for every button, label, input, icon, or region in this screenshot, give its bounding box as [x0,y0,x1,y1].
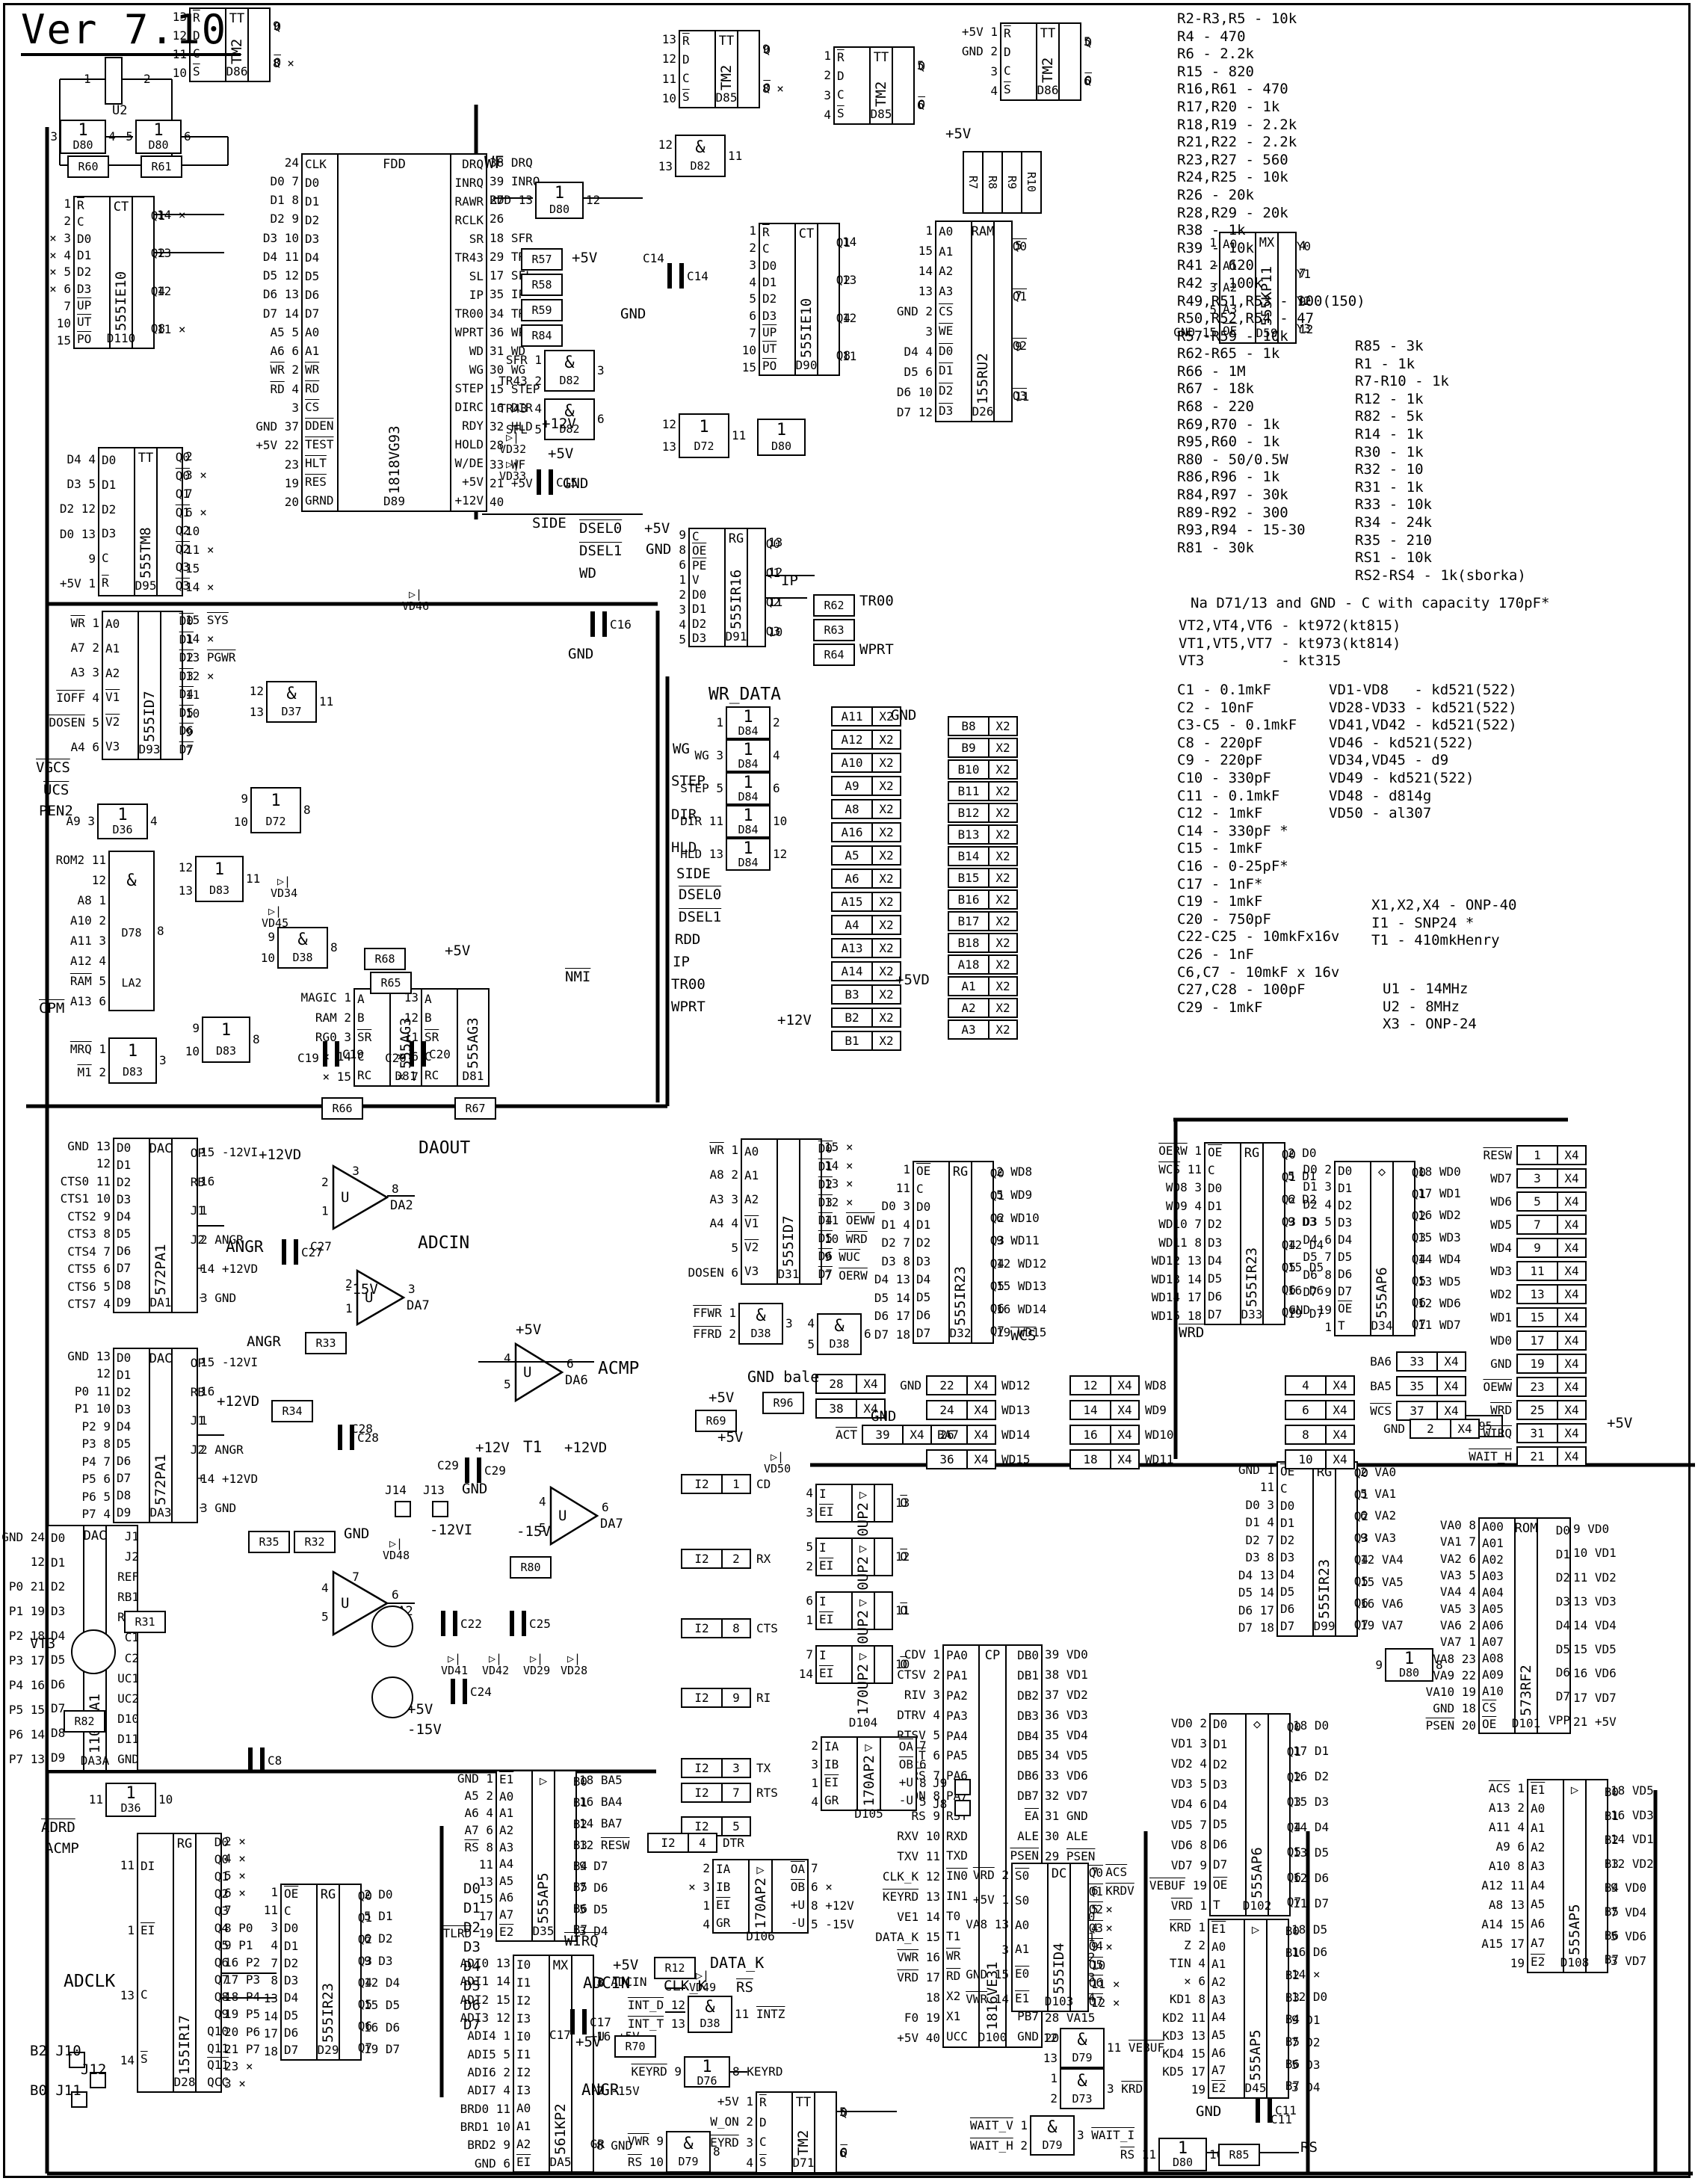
ic-ext-row: P1 10 [42,1403,111,1415]
diode-VD45: ▷| VD45 [262,906,288,930]
gate-ext-row: 3 [597,365,660,377]
ic-ext-row: DTRV 4 [871,1709,940,1721]
parts-line: C29 - 1mkF [1177,999,1339,1017]
pin-name: D0 [117,1352,146,1364]
ic-ext-right [138,1525,209,1771]
pin-number: 7 [185,744,193,758]
pin-number: 21 [31,1579,45,1594]
ic-ext-row: 15 SYS [185,614,254,626]
connector-name: X2 [990,803,1018,823]
ic-designator: D106 [746,1929,775,1943]
ic-ext-row: BRD2 9 [442,2139,510,2151]
ic-middle: RAM155RU2D26 [972,222,993,421]
pin-number: 18 [579,1773,593,1787]
ic-ext-row: D7 12 [864,407,933,419]
ext-signal: GND [67,1139,89,1153]
ic-ext-row: 14 D4 [1293,1821,1362,1833]
ic-type: 155RU2 [975,239,991,404]
ic-designator: D71 [793,2156,815,2170]
ic-col-left: RCD0D1D2D3UPUTPO [75,197,111,348]
pin-number: 12 [179,860,193,874]
pin-number: 2 [364,1887,371,1901]
ic-ext-row: VRD 17 [871,1972,940,1984]
ext-signal: WAIT_V [970,2118,1013,2132]
pin-name: S [1004,84,1034,96]
pin-number: 3 [731,1192,738,1206]
gate-ext-right: 6 [862,1313,927,1355]
parts-line: U1 - 14MHz [1383,981,1477,999]
net-label: HLD [671,841,697,855]
pin-name: A5 [1531,1898,1560,1910]
ic-ext-row: 10 [118,67,187,79]
pin-name: DB6 [1009,1770,1039,1782]
ic-ext-row: D5 6 [864,366,933,378]
pin-number: 1 [1517,1781,1525,1795]
pin-number: 15 [742,360,756,374]
ic-ext-left: GND 1312P0 11P1 10P2 9P3 8P4 7P5 6P6 5P7… [42,1348,113,1523]
ext-signal: ALE [1066,1829,1088,1843]
pin-number: 7 [919,1739,927,1753]
gate-box: &D82 [544,350,595,392]
ic-ext-row: +5V 1 [929,26,998,38]
connector-pin: I2 [681,1758,723,1778]
parts-line: C20 - 750pF [1177,911,1339,929]
pin-number: 19 [1191,2082,1205,2097]
gate-box: 1D80 [1385,1648,1433,1682]
ic-ext-row: 5 WD9 [996,1189,1065,1201]
ic-ext-row: 7 [1015,290,1084,302]
pin-name: E2 [1531,1956,1560,1968]
ic-middle: TTTM2D85 [871,48,892,123]
pin-number: 10 [96,1401,111,1416]
pin-name: E1 [499,1774,529,1786]
connector-pin: 3 [1516,1168,1558,1188]
svg-text:8: 8 [392,1182,399,1196]
ext-signal: VD0 [1066,1647,1088,1662]
pin-number: 10 [96,1191,111,1206]
ic-function-label: RG [177,1836,192,1851]
ic-ext-row: 9 × [1091,1941,1160,1953]
gate-D80: RDD 131D8012 [470,182,649,219]
ext-signal: IOFF [56,691,85,705]
pin-number: 14 [185,580,200,594]
pin-number: 3 [990,64,998,78]
pin-name: IB [716,1881,746,1893]
ic-ext-left: 111347813141718 [209,1884,280,2061]
ext-signal: D0 [881,1199,895,1213]
connector-pin: 25 [1516,1400,1558,1420]
connector-signal-right: TX [751,1761,771,1775]
ext-signal: DRQ [511,155,533,170]
pin-name: D6 [1208,1291,1238,1303]
pin-number: 1 [811,1776,818,1790]
gate-ext-row: MRQ 1 [43,1043,106,1055]
ext-signal: RAM [70,974,92,988]
pin-number: 12 [996,1256,1010,1271]
pin-number: 4 [103,1507,111,1521]
ic-ext-row: D7 18 [1205,1622,1274,1634]
parts-line: R6 - 2.2k [1177,46,1365,64]
ic-col-left: IEI [817,1539,853,1575]
ic-ext-left: D4 4D3 5D2 12D0 139+5V 1 [27,447,98,596]
ic-ext-row: GND 2 [929,46,998,58]
ic-ext-row: A9 6 [1456,1841,1525,1853]
ic-ext-row: 2 [762,70,831,81]
pin-name: S [141,2053,170,2065]
ic-ext-right: 18 D017 D116 D215 D314 D413 D512 D611 D7 [1291,1713,1362,1916]
pin-number: 1 [1469,1635,1476,1649]
ic-ext-row: 2 [185,451,254,463]
pin-name: A5 [1211,2029,1241,2041]
pin-number: 10 [895,1657,910,1671]
ic-col-left: IAIBEIGR [822,1738,858,1810]
ic-ext-row: +5V 1 [685,2096,753,2108]
pin-number: 4 [534,401,542,416]
net-label: DSEL0 [579,522,622,536]
pin-number: 4 [88,452,96,466]
pin-number: 2 [811,1739,818,1753]
pin-name: D7 [1208,1309,1238,1321]
connector-stack: I28CTS [594,1618,778,1643]
connector-name: X4 [1558,1446,1587,1466]
schematic-page: Ver 7.10 R2-R3,R5 - 10kR4 - 470R6 - 2.2k… [0,0,1698,2184]
parts-line: C15 - 1mkF [1177,840,1339,858]
pin-number: 4 [1267,1515,1274,1529]
ic-type: 170UP2 [855,1664,871,1715]
pin-name: CS [1482,1702,1512,1714]
pin-number: 23 [285,457,299,472]
ic-ext-left: VRD 2+5V 1VA8 133GND 15VWR 14 [940,1863,1011,2012]
ic-ext-row: 8 × [273,58,342,70]
connector-row: 6X4 [1198,1400,1360,1420]
connector-name: X4 [1558,1307,1587,1327]
ic-ext-row: 5 D3 [1291,2059,1360,2071]
ic-ext-right: 56 [837,2091,908,2174]
gate-ext-left: 9 [1320,1648,1385,1682]
pin-number: 3 [92,665,99,679]
gate-symbol: 1 [699,419,708,436]
connector-pin: B8 [948,716,990,736]
connector-name: X4 [1327,1449,1355,1469]
pin-name: D [759,2117,789,2129]
net-label: WIRQ [564,1934,599,1949]
ic-col-left: RDCS [835,48,871,123]
ic-ext-row: 15 [185,563,254,575]
ic-ext-row: D2 7 [1205,1534,1274,1546]
gate-designator: D79 [1072,2052,1092,2064]
pin-name: A [424,993,454,1005]
ic-middle: ▷555AP5D45 [1245,1920,1266,2097]
pin-name: A7 [1531,1937,1560,1949]
ic-ext-row: 10 [895,1659,964,1671]
pin-number: 3 [716,748,723,762]
ic-ext-row: CTS7 4 [42,1298,111,1310]
ic-ext-row: 13 D5 [1293,1847,1362,1859]
pin-number: 16 [926,1950,940,1964]
connector-row: B8X2 [861,716,1023,736]
ic-designator: D33 [1241,1307,1263,1321]
connector-signal-left: WD2 [1430,1287,1516,1301]
net-label: +5V [644,522,670,536]
gate-symbol: & [705,1999,714,2016]
pin-number: 3 [806,1505,813,1520]
ic-ext-row: 4 [762,109,831,121]
ic-ext-row: 7 VD4 [1611,1907,1679,1919]
pin-name: D0 [1213,1718,1243,1730]
ic-ext-row: 13 [209,1993,278,2005]
ext-signal: P0 [75,1384,89,1398]
ext-signal: VA7 [1382,1618,1404,1632]
connector-signal-right: CTS [751,1621,778,1635]
ic-ext-row: A14 15 [1456,1919,1525,1931]
ext-signal: D7 [897,405,911,419]
net-label: VT3 [30,1637,55,1651]
connector-pin: B15 [948,868,990,888]
ic-box: A0A1A2V1V2V3 555ID7D31D0D1D2D3D4D5D6D7 [741,1138,822,1285]
pin-number: 10 [285,231,299,245]
pin-name: SR [424,1031,454,1043]
ext-signal: VA6 [1440,1618,1462,1632]
ic-middle: DAC572PA1DA3 [150,1349,171,1522]
ic-ext-row: 18 D5 [1291,1924,1360,1936]
net-label: TR00 [859,594,894,608]
ic-ext-row: 5 -15V [811,1919,880,1931]
ic-box: A00A01A02A03A04A05A06A07A08A09A10CSOEROM… [1478,1517,1571,1734]
pin-name: +5V [454,476,484,488]
pin-name: OA [775,1863,805,1875]
resistor-R34: R34 [271,1400,313,1422]
ext-signal: WD8 [1166,1180,1188,1194]
pin-number: 35 [1045,1728,1059,1742]
net-label: B2 J10 [30,2044,81,2058]
ic-ext-left: GND 1A5 2A6 4A7 6RS 811131517TLRD 19 [424,1770,495,1942]
pin-name: PO [762,360,792,372]
ic-ext-row: 5 VA1 [1360,1488,1429,1500]
ic-ext-row: D3 5 [1263,1216,1332,1228]
pin-number: 7 [1267,1533,1274,1547]
ic-col-left: A0A1A2V1V2V3 [103,612,139,759]
ic-middle: CT555IE10D110 [111,197,132,348]
resistor-R68: R68 [364,948,406,970]
ic-ext-left: VA0 8VA1 7VA2 6VA3 5VA4 4VA5 3VA6 2VA7 1… [1407,1517,1478,1734]
connector-pin: 31 [1516,1423,1558,1443]
pin-name: D9 [117,1507,146,1519]
ic-ext-row: 16 WD14 [996,1304,1065,1315]
pin-number: 9 [88,552,96,566]
ext-signal: P1 [75,1401,89,1416]
pin-number: 2 [486,1789,493,1803]
pin-number: 11 [96,1174,111,1188]
ic-ext-row: A8 13 [1456,1899,1525,1911]
pin-number: 5 [99,974,106,988]
ext-signal: P7 [81,1507,96,1521]
pin-number: 13 [1188,1253,1202,1268]
ext-signal: VD7 [1171,1858,1193,1872]
pin-number: 1 [503,2029,510,2043]
pin-number: 11 [1142,2147,1156,2162]
pin-name: A4 [499,1858,529,1870]
ic-ext-right: 12 [893,1537,964,1576]
pin-number: 7 [1091,1865,1099,1879]
ext-signal: DOSEN [688,1265,724,1280]
pin-number: 4 [99,954,106,968]
ic-col-left: IAIBEIGR [714,1860,750,1932]
pin-number: 5 [126,129,133,144]
pin-number: 3 [1469,1602,1476,1616]
ic-function-label: RAM [972,224,995,239]
pin-number: 4 [224,1851,232,1866]
pin-name: A0 [1211,1941,1241,1953]
pin-name: D1 [51,1557,81,1569]
pin-number: 11 [768,595,782,609]
pin-number: 37 [1045,1688,1059,1702]
ic-ext-left: GND 1312CTS0 11CTS1 10CTS2 9CTS3 8CTS4 7… [42,1138,113,1313]
pin-number: 5 [364,1909,371,1923]
pin-name: B [424,1012,454,1024]
gate-ext-row: INT_D 12 [623,1999,685,2011]
parts-line: C11 - 0.1mkF [1177,788,1339,806]
ic-ext-row: D6 17 [1205,1605,1274,1617]
gate-designator: D38 [292,952,312,963]
pin-name: DB5 [1009,1750,1039,1762]
connector-pin: 7 [1516,1215,1558,1235]
ext-signal: WD14 [1152,1290,1181,1304]
net-label: C27 [310,1241,332,1253]
pin-number: 12 [658,138,673,152]
ext-signal: GND [475,2156,496,2171]
pin-number: 7 [806,1647,813,1662]
pin-number: 6 [996,1211,1004,1225]
pin-number: 12 [185,669,200,683]
ic-ext-row: 5 [1084,36,1152,48]
ic-ext-row: VA10 19 [1407,1686,1476,1698]
ext-signal: D3 [263,231,277,245]
ext-signal: KRD [1170,1920,1191,1934]
ext-signal: WCS [1158,1162,1180,1176]
gate-designator: D38 [700,2018,720,2029]
parts-line: X1,X2,X4 - ONP-40 [1371,897,1516,915]
pin-name: C [692,531,722,543]
ext-signal: -12VI [222,1355,258,1369]
pin-number: 20 [1462,1718,1476,1733]
ext-signal: OERW [1158,1144,1188,1158]
ic-middle: ▷555AP5D108 [1564,1780,1585,1972]
ic-ext-right: 14 ×131211 × [155,196,226,349]
pin-number: 19 [479,1926,493,1940]
net-label: ACMP [45,1842,79,1856]
pin-number: 5 [1611,1929,1618,1943]
pin-number: 2 [731,1167,738,1182]
ext-signal: A8 [77,893,91,907]
connector-stack: I27RTS [594,1783,778,1807]
ext-signal: × [49,282,57,296]
pin-number: 1 [127,1923,135,1937]
ext-signal: D0 [1315,1718,1329,1733]
svg-text:U: U [523,1364,531,1381]
ic-ext-right: 2 WD85 WD96 WD109 WD1112 WD1215 WD1316 W… [994,1161,1065,1344]
gate-ext-row: 8 [1436,1659,1498,1671]
pin-number: 2 [679,587,686,602]
ic-ext-row: +5V 1 [27,578,96,590]
pin-name: I [819,1488,849,1500]
net-label: C28 [351,1423,373,1435]
ext-signal: D0 [270,174,284,188]
gate-ext-left: FFWR 1FFRD 2 [673,1303,738,1345]
pin-name: D6 [51,1679,81,1691]
ext-signal: P2 [81,1419,96,1434]
ext-signal: WD13 [1018,1279,1047,1293]
pin-number: 2 [1288,1146,1295,1160]
pin-number: 15 [1360,1575,1374,1589]
pin-name: D2 [916,1237,946,1249]
net-label: ADCLK [64,1973,115,1990]
ic-ext-row: 7 ACS [1091,1866,1160,1878]
pin-number: 19 [285,476,299,490]
gate-box: 1D76 [684,2056,730,2088]
ic-col-left: E1A0A1A2A3A4A5A6A7E2 [1528,1780,1564,1972]
pin-number: 7 [1015,289,1022,303]
pin-number: 11 [926,1849,940,1863]
resistor-R35: R35 [248,1531,290,1553]
connector-pin: B10 [948,759,990,780]
ic-ext-row: 35 VD4 [1045,1730,1114,1742]
ext-signal: VA4 [1440,1585,1462,1599]
ic-ext-row: DATA_K 15 [871,1931,940,1943]
pin-name: CLK [305,158,335,170]
parts-line: C14 - 330pF * [1177,823,1339,841]
parts-line: R95,R60 - 1k [1177,434,1365,451]
ic-ext-row: D0 3 [1205,1499,1274,1511]
ic-ext-row: 15 D5 [364,1999,433,2011]
pin-name: S [682,91,712,103]
net-label: RDD [675,933,700,947]
pin-number: 3 [703,1880,710,1894]
transistor-VT3 [71,1629,116,1674]
connector-row: B9X2 [861,738,1023,758]
ic-ext-row: D4 4 [864,346,933,358]
ic-ext-row: TXV 11 [871,1851,940,1863]
pin-name: A0 [1015,1919,1045,1931]
pin-name: D2 [1208,1218,1238,1230]
pin-number: 11 [1191,2011,1205,2025]
pin-name: EI [819,1614,849,1626]
gate-ext-right: 3 [157,1037,222,1084]
ic-col-left: A00A01A02A03A04A05A06A07A08A09A10CSOE [1480,1519,1516,1733]
pin-number: 4 [731,1216,738,1230]
gate-ext-right: 8 [1433,1648,1498,1682]
pin-name: D6 [1338,1268,1368,1280]
ic-ext-row: A5 2 [424,1790,493,1802]
ic-ext-row: 11 [424,1859,493,1871]
gate-designator: D79 [1042,2140,1062,2151]
connector-pin: 15 [1516,1307,1558,1327]
pin-number: 2 [806,1559,813,1573]
pin-number: 6 [103,1262,111,1276]
pin-number: 2 [1198,1938,1205,1952]
resistor-R9: R9 [1001,151,1022,214]
ic-box: IEI▷170UP2D104O [815,1537,893,1576]
pin-number: 7 [903,1236,910,1250]
pin-number: 10 [662,91,676,105]
gate-D36: 111D3610 [40,1783,221,1817]
connector-row: 4X4 [1198,1375,1360,1395]
pin-number: 24 [285,155,299,170]
ic-ext-row: CTS4 7 [42,1246,111,1258]
pin-number: 31 [1045,1809,1059,1823]
gate-symbol: & [286,686,296,703]
ext-signal: KEYRD [883,1890,919,1904]
ic-ext-row: 2 WD8 [996,1166,1065,1178]
